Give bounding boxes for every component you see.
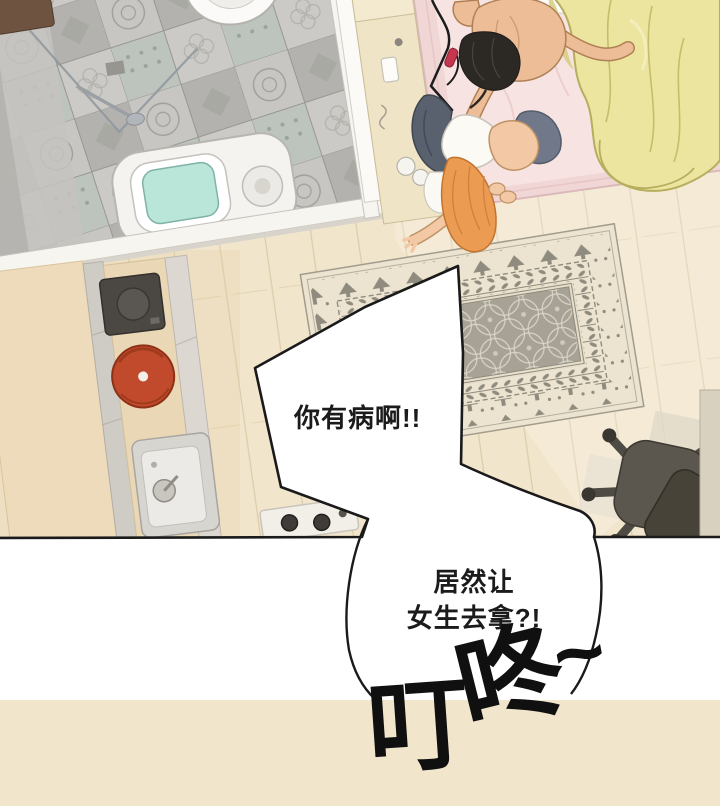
shower-drain — [105, 60, 125, 76]
dark-appliance — [99, 273, 165, 336]
girl-legs — [489, 121, 538, 170]
bottle — [381, 57, 399, 83]
desk-edge — [700, 390, 720, 538]
kitchen-counter — [0, 248, 222, 571]
kitchen-sink — [131, 432, 220, 539]
girl-foot — [500, 191, 516, 203]
comic-panel-scene — [0, 0, 720, 700]
